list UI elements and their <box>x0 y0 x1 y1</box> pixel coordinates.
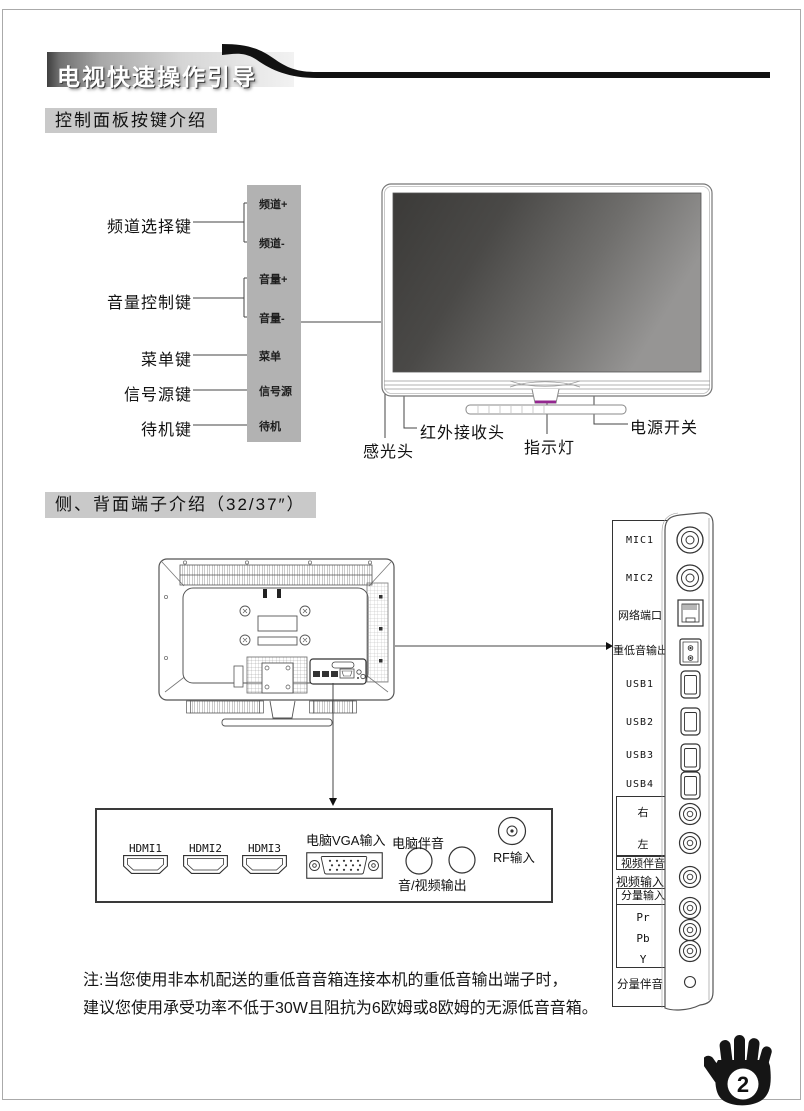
label-hdmi3: HDMI3 <box>242 842 287 855</box>
callout-light-sensor: 感光头 <box>363 438 414 462</box>
label-hdmi1: HDMI1 <box>123 842 168 855</box>
label-usb4: USB4 <box>613 779 667 790</box>
label-channel-select-key: 频道选择键 <box>90 213 192 237</box>
label-usb2: USB2 <box>613 717 667 728</box>
bottom-terminal-panel: HDMI1 HDMI2 HDMI3 电脑VGA输入 电脑伴音 音/视频输出 RF… <box>95 808 553 903</box>
side-connector-strip <box>660 508 718 1016</box>
button-source: 信号源 <box>259 383 292 399</box>
label-network-port: 网络端口 <box>613 607 667 623</box>
bottom-connectors <box>97 810 551 901</box>
section2-callout-arrows <box>150 550 650 820</box>
vga-connector <box>307 853 383 879</box>
note-line2: 建议您使用承受功率不低于30W且阻抗为6欧姆或8欧姆的无源低音音箱。 <box>83 994 598 1018</box>
section1-heading: 控制面板按键介绍 <box>45 108 217 133</box>
label-av-out: 音/视频输出 <box>398 875 467 894</box>
label-menu-key: 菜单键 <box>90 346 192 370</box>
button-menu: 菜单 <box>259 348 281 364</box>
indicator-accent <box>535 401 556 404</box>
rf-connector <box>499 818 526 845</box>
label-subwoofer-out: 重低音输出 <box>613 642 667 658</box>
callout-power-switch: 电源开关 <box>630 414 698 438</box>
button-volume-down: 音量- <box>259 310 285 326</box>
page-number: 2 <box>737 1072 749 1097</box>
tv-screen <box>393 193 701 372</box>
page-title: 电视快速操作引导 <box>57 58 257 92</box>
label-component-audio: 分量伴音 <box>613 976 667 992</box>
label-rf-in: RF输入 <box>484 847 544 866</box>
button-channel-down: 频道- <box>259 235 285 251</box>
manual-page: 电视快速操作引导 控制面板按键介绍 频道选择键 音量控制键 菜单键 信号源键 待… <box>0 0 804 1111</box>
arrow-down-head <box>329 798 337 806</box>
av-out-jack <box>449 847 475 873</box>
label-vga-in: 电脑VGA输入 <box>306 830 383 849</box>
hdmi2-connector <box>184 856 228 874</box>
section2-heading: 侧、背面端子介绍（32/37″） <box>45 492 316 518</box>
label-usb1: USB1 <box>613 679 667 690</box>
callout-ir-receiver: 红外接收头 <box>420 419 505 443</box>
hdmi1-connector <box>124 856 168 874</box>
label-mic1: MIC1 <box>613 535 667 546</box>
label-pc-audio: 电脑伴音 <box>392 833 444 852</box>
label-hdmi2: HDMI2 <box>183 842 228 855</box>
button-volume-up: 音量+ <box>259 271 287 287</box>
note-line1: 注:当您使用非本机配送的重低音音箱连接本机的重低音输出端子时， <box>83 966 567 990</box>
label-usb3: USB3 <box>613 750 667 761</box>
label-mic2: MIC2 <box>613 573 667 584</box>
button-standby: 待机 <box>259 418 281 434</box>
label-volume-control-key: 音量控制键 <box>90 289 192 313</box>
button-channel-up: 频道+ <box>259 196 287 212</box>
tv-front-illustration <box>380 181 715 426</box>
hdmi3-connector <box>243 856 287 874</box>
hand-icon: 2 <box>704 1034 784 1106</box>
label-source-key: 信号源键 <box>90 381 192 405</box>
callout-indicator-light: 指示灯 <box>524 434 575 458</box>
label-standby-key: 待机键 <box>90 416 192 440</box>
